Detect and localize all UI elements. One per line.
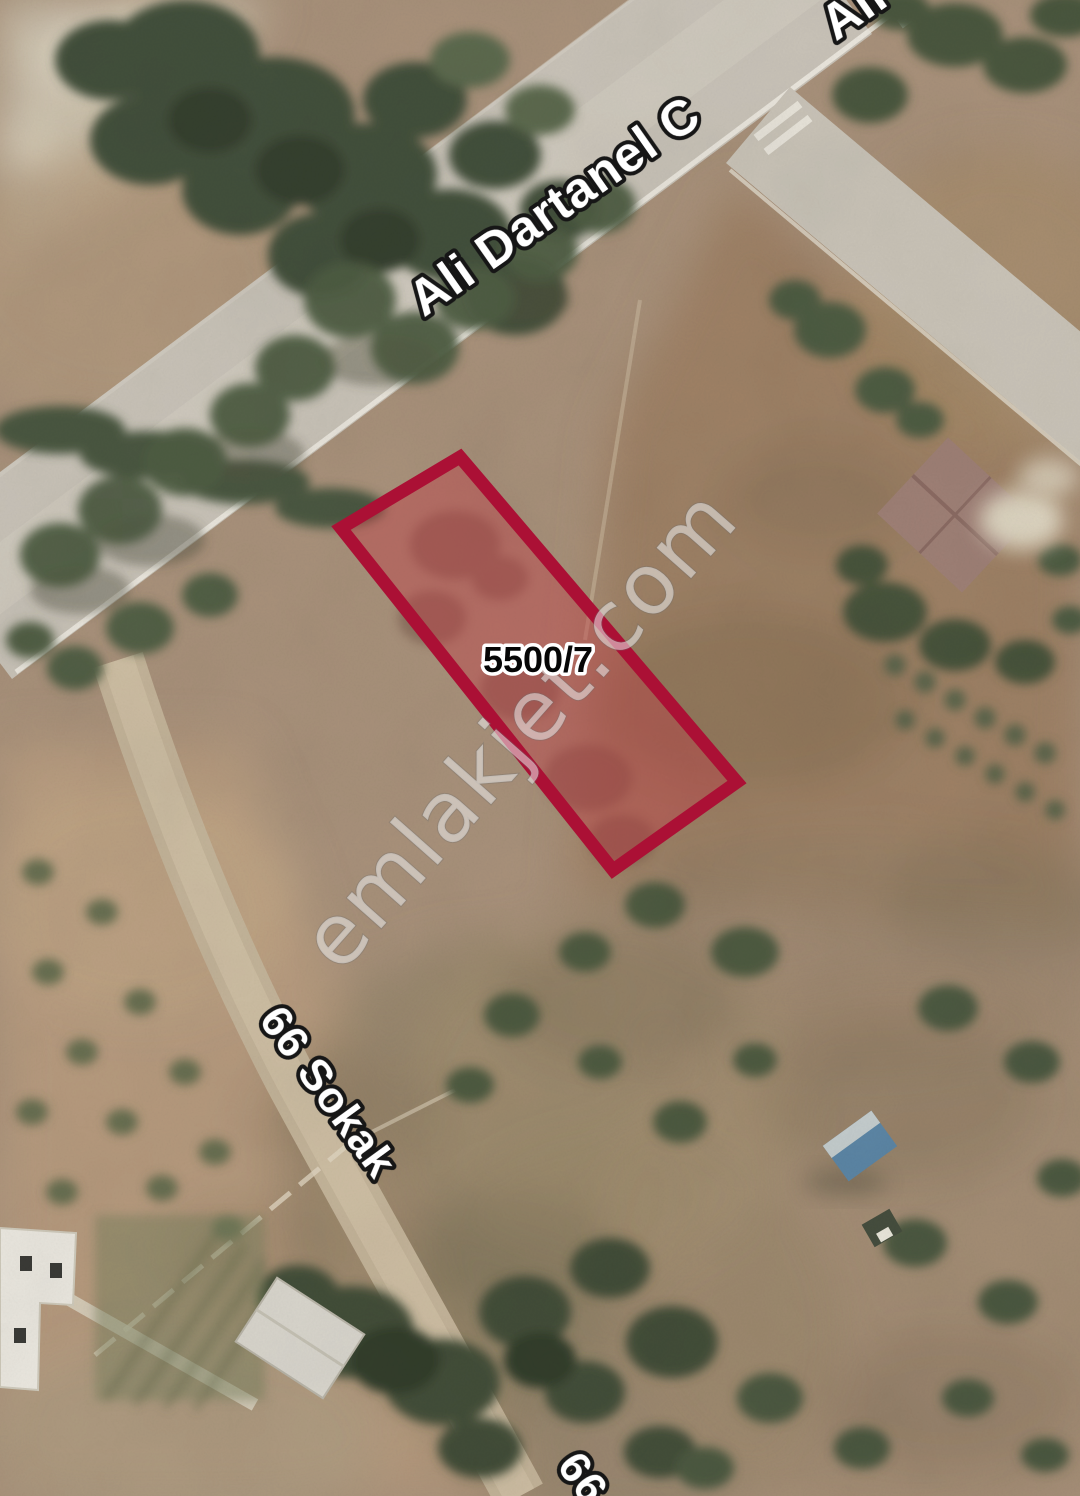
parcel-number-label: 5500/7: [483, 639, 593, 680]
satellite-scene: emlakjet.com Ali Dartanel C Ali 66 Sokak…: [0, 0, 1080, 1496]
satellite-map-image: emlakjet.com Ali Dartanel C Ali 66 Sokak…: [0, 0, 1080, 1496]
